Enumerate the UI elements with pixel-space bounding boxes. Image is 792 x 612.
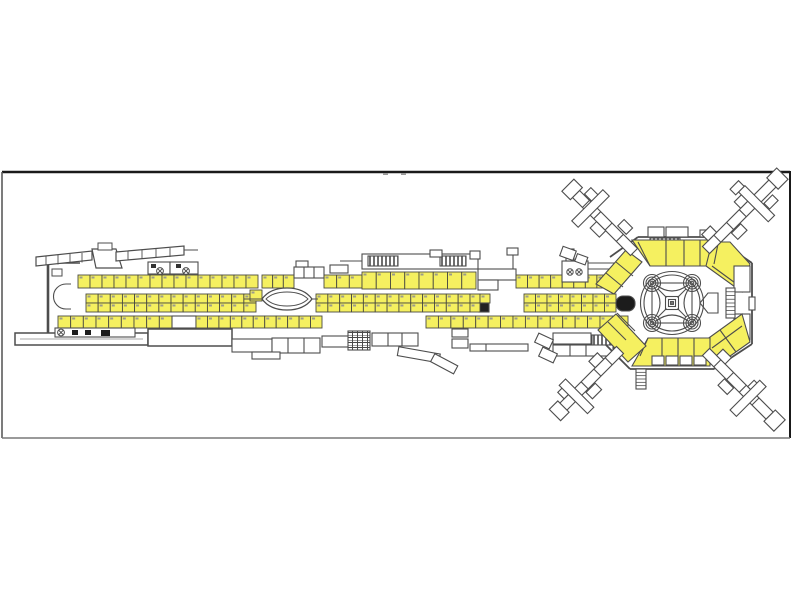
stall-label-mark xyxy=(136,318,139,320)
stall-label-mark xyxy=(112,296,115,298)
stall-label-mark xyxy=(198,318,201,320)
stall-label-mark xyxy=(392,274,395,276)
lower-wing-bar-2 xyxy=(148,329,232,346)
stall-label-mark xyxy=(161,318,164,320)
stall-label-mark xyxy=(152,277,155,279)
stall-label-mark xyxy=(285,277,288,279)
stall-label-mark xyxy=(526,305,529,307)
stall-row-top-3 xyxy=(324,275,362,288)
stall-label-mark xyxy=(400,296,403,298)
stall-label-mark xyxy=(482,296,485,298)
stall-label-mark xyxy=(518,277,521,279)
stall-unit xyxy=(86,303,98,312)
stall-label-mark xyxy=(472,296,475,298)
stall-unit xyxy=(110,303,122,312)
stall-label-mark xyxy=(329,305,332,307)
stall-unit xyxy=(480,294,490,303)
stall-unit xyxy=(434,303,446,312)
stall-label-mark xyxy=(116,277,119,279)
stall-unit xyxy=(363,294,375,303)
stall-unit xyxy=(98,294,110,303)
stall-unit xyxy=(195,303,207,312)
stall-label-mark xyxy=(278,318,281,320)
stall-row-mid-lower-4 xyxy=(524,303,616,312)
stall-label-mark xyxy=(197,305,200,307)
stall-label-mark xyxy=(541,277,544,279)
stall-row-bottom-3 xyxy=(426,316,600,328)
stall-unit xyxy=(423,303,435,312)
stall-row-mid-lower-3 xyxy=(470,303,480,312)
stall-unit xyxy=(582,294,594,303)
stall-unit xyxy=(524,303,536,312)
stall-unit xyxy=(207,303,219,312)
stall-label-mark xyxy=(606,305,609,307)
stall-unit xyxy=(220,303,232,312)
stall-label-mark xyxy=(552,318,555,320)
dark-stall xyxy=(479,303,489,312)
stall-label-mark xyxy=(212,277,215,279)
stall-row-bottom-1 xyxy=(58,316,172,328)
stall-label-mark xyxy=(140,277,143,279)
floor-plan-page xyxy=(0,0,792,612)
stall-row-top-2 xyxy=(262,275,294,288)
stall-row-top-1 xyxy=(78,275,258,288)
stall-label-mark xyxy=(389,305,392,307)
stall-label-mark xyxy=(572,305,575,307)
column-symbol xyxy=(567,269,573,275)
stall-label-mark xyxy=(549,296,552,298)
stall-label-mark xyxy=(289,318,292,320)
stall-unit xyxy=(536,303,548,312)
stall-label-mark xyxy=(245,296,248,298)
stall-row-bottom-2 xyxy=(196,316,322,328)
stall-label-mark xyxy=(318,296,321,298)
stall-row-mid-upper-2 xyxy=(316,294,470,303)
stall-label-mark xyxy=(197,296,200,298)
stall-label-mark xyxy=(233,305,236,307)
stall-label-mark xyxy=(440,318,443,320)
stall-label-mark xyxy=(128,277,131,279)
stall-label-mark xyxy=(406,274,409,276)
stall-label-mark xyxy=(452,318,455,320)
stall-label-mark xyxy=(549,305,552,307)
stall-label-mark xyxy=(435,274,438,276)
stall-unit xyxy=(159,303,171,312)
stall-label-mark xyxy=(589,318,592,320)
stall-label-mark xyxy=(448,296,451,298)
stall-unit xyxy=(183,303,195,312)
stall-label-mark xyxy=(341,296,344,298)
escalator-block xyxy=(440,256,466,266)
stall-unit xyxy=(593,303,605,312)
stall-label-mark xyxy=(412,305,415,307)
mid-row-end-cap xyxy=(616,296,635,311)
stall-label-mark xyxy=(448,305,451,307)
stair-block xyxy=(348,331,370,350)
column-symbol xyxy=(183,268,190,275)
border-tick-1 xyxy=(383,173,388,175)
stall-label-mark xyxy=(266,318,269,320)
stall-label-mark xyxy=(148,318,151,320)
stall-label-mark xyxy=(436,296,439,298)
stall-label-mark xyxy=(412,296,415,298)
stall-label-mark xyxy=(353,296,356,298)
stall-label-mark xyxy=(527,318,530,320)
stall-label-mark xyxy=(233,296,236,298)
stall-unit xyxy=(536,294,548,303)
stall-unit xyxy=(559,294,571,303)
stall-unit xyxy=(98,303,110,312)
stall-label-mark xyxy=(164,277,167,279)
stall-unit xyxy=(470,303,480,312)
stall-label-mark xyxy=(220,318,223,320)
stall-label-mark xyxy=(577,318,580,320)
stall-label-mark xyxy=(428,318,431,320)
stall-unit xyxy=(244,303,256,312)
stall-unit xyxy=(570,294,582,303)
south-stairs xyxy=(636,369,646,389)
stall-unit xyxy=(582,303,594,312)
stall-label-mark xyxy=(264,277,267,279)
stall-label-mark xyxy=(552,277,555,279)
stall-unit xyxy=(411,303,423,312)
stall-label-mark xyxy=(436,305,439,307)
stall-label-mark xyxy=(160,296,163,298)
stall-unit xyxy=(375,303,387,312)
stall-unit xyxy=(122,294,134,303)
stall-label-mark xyxy=(400,305,403,307)
stall-label-mark xyxy=(98,318,101,320)
stall-unit xyxy=(352,303,364,312)
stall-label-mark xyxy=(85,318,88,320)
stall-label-mark xyxy=(92,277,95,279)
stall-label-mark xyxy=(463,274,466,276)
stall-label-mark xyxy=(124,296,127,298)
stall-unit xyxy=(147,303,159,312)
stall-label-mark xyxy=(112,305,115,307)
floor-plan-svg xyxy=(0,0,792,612)
stall-label-mark xyxy=(136,296,139,298)
stall-unit xyxy=(559,303,571,312)
stall-label-mark xyxy=(338,277,341,279)
stall-label-mark xyxy=(539,318,542,320)
stall-label-mark xyxy=(148,305,151,307)
stall-label-mark xyxy=(318,305,321,307)
stall-label-mark xyxy=(477,318,480,320)
stall-label-mark xyxy=(100,305,103,307)
stall-unit xyxy=(232,303,244,312)
stall-label-mark xyxy=(377,305,380,307)
stall-label-mark xyxy=(236,277,239,279)
stall-unit xyxy=(328,294,340,303)
stall-unit xyxy=(458,294,470,303)
stall-label-mark xyxy=(221,296,224,298)
stall-unit xyxy=(340,303,352,312)
stall-label-mark xyxy=(224,277,227,279)
stall-label-mark xyxy=(245,305,248,307)
stall-unit xyxy=(340,294,352,303)
stall-unit xyxy=(387,294,399,303)
stall-unit xyxy=(110,294,122,303)
stall-label-mark xyxy=(472,305,475,307)
stall-unit xyxy=(524,294,536,303)
stall-unit xyxy=(446,303,458,312)
stall-label-mark xyxy=(326,277,329,279)
stall-label-mark xyxy=(301,318,304,320)
stall-label-mark xyxy=(364,274,367,276)
stall-label-mark xyxy=(351,277,354,279)
stall-label-mark xyxy=(221,305,224,307)
stall-label-mark xyxy=(173,296,176,298)
stall-label-mark xyxy=(424,305,427,307)
stall-label-mark xyxy=(537,296,540,298)
stall-label-mark xyxy=(88,305,91,307)
stall-label-mark xyxy=(529,277,532,279)
stall-row-mid-lower-1 xyxy=(86,303,256,312)
stall-unit xyxy=(232,294,244,303)
stall-unit xyxy=(593,294,605,303)
stall-label-mark xyxy=(560,305,563,307)
stall-unit xyxy=(352,294,364,303)
stall-label-mark xyxy=(124,305,127,307)
stall-label-mark xyxy=(232,318,235,320)
stall-unit xyxy=(570,303,582,312)
stall-label-mark xyxy=(365,296,368,298)
stall-label-mark xyxy=(248,277,251,279)
stall-label-mark xyxy=(377,296,380,298)
east-stairs xyxy=(726,288,735,318)
stall-unit xyxy=(86,294,98,303)
escalator-block xyxy=(368,256,398,266)
stall-label-mark xyxy=(200,277,203,279)
stall-label-mark xyxy=(110,318,113,320)
stall-unit xyxy=(159,294,171,303)
stall-label-mark xyxy=(243,318,246,320)
stall-label-mark xyxy=(209,318,212,320)
stall-label-mark xyxy=(526,296,529,298)
stall-label-mark xyxy=(564,318,567,320)
stall-unit xyxy=(434,294,446,303)
stall-unit xyxy=(411,294,423,303)
stall-row-mid-upper-4 xyxy=(524,294,616,303)
stall-unit xyxy=(195,294,207,303)
stall-label-mark xyxy=(252,292,255,294)
stall-label-mark xyxy=(148,296,151,298)
stall-label-mark xyxy=(160,305,163,307)
stall-label-mark xyxy=(274,277,277,279)
stall-unit xyxy=(363,303,375,312)
stall-unit xyxy=(547,294,559,303)
stall-label-mark xyxy=(209,296,212,298)
stall-label-mark xyxy=(595,305,598,307)
stall-label-mark xyxy=(104,277,107,279)
stall-unit xyxy=(458,303,470,312)
stall-label-mark xyxy=(460,296,463,298)
column-symbol xyxy=(157,268,164,275)
stall-label-mark xyxy=(583,305,586,307)
stall-unit xyxy=(375,294,387,303)
stall-label-mark xyxy=(583,296,586,298)
stall-label-mark xyxy=(100,296,103,298)
stall-label-mark xyxy=(537,305,540,307)
stall-unit xyxy=(470,294,480,303)
stall-row-mid-upper-3 xyxy=(470,294,490,303)
stall-unit xyxy=(122,303,134,312)
stall-label-mark xyxy=(595,296,598,298)
row-gap-box xyxy=(172,316,196,328)
stall-unit xyxy=(135,294,147,303)
stall-label-mark xyxy=(80,277,83,279)
stall-label-mark xyxy=(176,277,179,279)
stall-label-mark xyxy=(449,274,452,276)
stall-row-top-4 xyxy=(362,272,476,289)
stall-label-mark xyxy=(353,305,356,307)
stall-unit xyxy=(207,294,219,303)
stall-unit xyxy=(171,303,183,312)
stall-label-mark xyxy=(72,318,75,320)
stall-unit xyxy=(446,294,458,303)
stall-label-mark xyxy=(460,305,463,307)
stall-unit xyxy=(183,294,195,303)
stall-label-mark xyxy=(572,296,575,298)
border-tick-2 xyxy=(401,173,406,175)
stall-unit xyxy=(605,294,617,303)
stall-label-mark xyxy=(490,318,493,320)
stall-label-mark xyxy=(60,318,63,320)
stall-unit xyxy=(387,303,399,312)
stall-label-mark xyxy=(515,318,518,320)
stall-row-mid-upper-1 xyxy=(86,294,256,303)
stall-label-mark xyxy=(188,277,191,279)
stall-unit xyxy=(220,294,232,303)
stall-unit xyxy=(135,303,147,312)
stall-unit xyxy=(547,303,559,312)
stall-label-mark xyxy=(88,296,91,298)
stall-unit xyxy=(605,303,617,312)
column-symbol xyxy=(58,329,65,336)
stall-label-mark xyxy=(312,318,315,320)
stall-label-mark xyxy=(602,318,605,320)
stall-label-mark xyxy=(365,305,368,307)
stall-label-mark xyxy=(389,296,392,298)
stall-label-mark xyxy=(560,296,563,298)
stall-label-mark xyxy=(329,296,332,298)
column-symbol xyxy=(576,269,582,275)
stall-unit xyxy=(399,303,411,312)
stall-label-mark xyxy=(136,305,139,307)
stall-row-mid-lower-2 xyxy=(316,303,470,312)
stall-label-mark xyxy=(123,318,126,320)
stall-label-mark xyxy=(465,318,468,320)
stall-label-mark xyxy=(255,318,258,320)
stall-unit xyxy=(399,294,411,303)
stall-label-mark xyxy=(606,296,609,298)
stall-label-mark xyxy=(378,274,381,276)
stall-label-mark xyxy=(209,305,212,307)
stall-unit xyxy=(171,294,183,303)
stall-label-mark xyxy=(173,305,176,307)
stall-unit xyxy=(316,303,328,312)
stall-label-mark xyxy=(185,296,188,298)
stall-label-mark xyxy=(502,318,505,320)
stall-label-mark xyxy=(341,305,344,307)
stall-label-mark xyxy=(424,296,427,298)
stall-unit xyxy=(423,294,435,303)
stall-label-mark xyxy=(185,305,188,307)
stall-unit xyxy=(328,303,340,312)
stall-label-mark xyxy=(421,274,424,276)
stall-unit xyxy=(147,294,159,303)
